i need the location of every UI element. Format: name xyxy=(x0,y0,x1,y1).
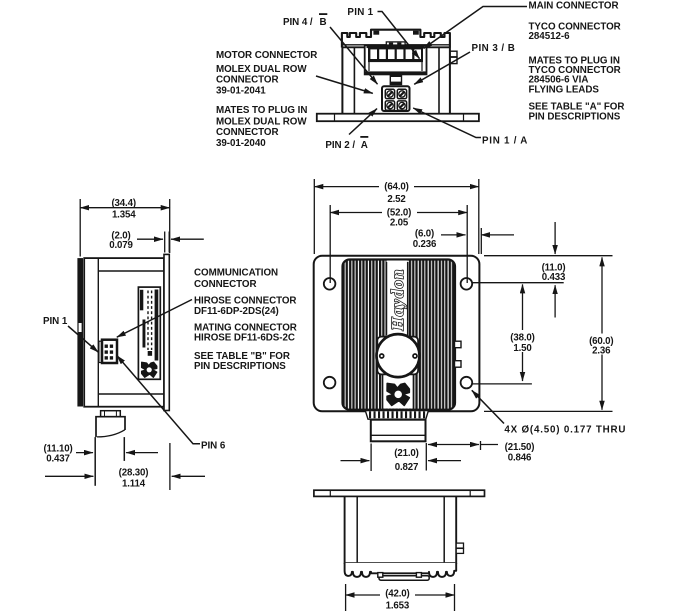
svg-text:CONNECTOR: CONNECTOR xyxy=(216,74,279,85)
svg-text:PIN DESCRIPTIONS: PIN DESCRIPTIONS xyxy=(529,112,621,123)
svg-text:A: A xyxy=(361,140,368,151)
svg-text:PIN 4 /: PIN 4 / xyxy=(283,17,313,28)
svg-text:(21.50): (21.50) xyxy=(505,442,535,453)
svg-text:2.52: 2.52 xyxy=(387,194,405,205)
svg-text:MOLEX DUAL ROW: MOLEX DUAL ROW xyxy=(216,64,307,75)
svg-text:PIN 2 /: PIN 2 / xyxy=(325,140,355,151)
svg-text:0.827: 0.827 xyxy=(395,462,419,473)
svg-text:Haydon: Haydon xyxy=(388,268,407,331)
svg-text:1.50: 1.50 xyxy=(513,343,531,354)
svg-text:PIN 3 / B: PIN 3 / B xyxy=(472,43,516,54)
svg-text:(21.0): (21.0) xyxy=(394,448,418,459)
svg-text:(6.0): (6.0) xyxy=(415,228,434,239)
svg-text:CONNECTOR: CONNECTOR xyxy=(216,127,279,138)
svg-text:MATES TO PLUG IN: MATES TO PLUG IN xyxy=(216,105,307,116)
svg-text:0.846: 0.846 xyxy=(508,452,532,463)
svg-text:(28.30): (28.30) xyxy=(119,467,149,478)
svg-text:0.079: 0.079 xyxy=(109,240,133,251)
svg-text:PIN 1 / A: PIN 1 / A xyxy=(482,136,528,147)
svg-text:HIROSE DF11-6DS-2C: HIROSE DF11-6DS-2C xyxy=(194,332,295,343)
svg-text:284512-6: 284512-6 xyxy=(529,31,571,42)
svg-text:B: B xyxy=(320,17,327,28)
svg-text:1.354: 1.354 xyxy=(112,209,136,220)
svg-text:39-01-2040: 39-01-2040 xyxy=(216,138,266,149)
svg-text:CONNECTOR: CONNECTOR xyxy=(194,279,257,290)
svg-text:(64.0): (64.0) xyxy=(384,181,408,192)
svg-text:MOTOR CONNECTOR: MOTOR CONNECTOR xyxy=(216,50,317,61)
svg-text:0.433: 0.433 xyxy=(542,272,566,283)
svg-text:39-01-2041: 39-01-2041 xyxy=(216,85,266,96)
svg-text:PIN DESCRIPTIONS: PIN DESCRIPTIONS xyxy=(194,361,286,372)
svg-text:2.05: 2.05 xyxy=(390,218,409,229)
svg-text:0.437: 0.437 xyxy=(46,454,70,465)
svg-text:PIN 1: PIN 1 xyxy=(347,7,373,18)
svg-text:HIROSE CONNECTOR: HIROSE CONNECTOR xyxy=(194,296,296,307)
svg-text:MAIN CONNECTOR: MAIN CONNECTOR xyxy=(529,1,619,12)
svg-text:(34.4): (34.4) xyxy=(111,198,135,209)
svg-text:DF11-6DP-2DS(24): DF11-6DP-2DS(24) xyxy=(194,306,279,317)
svg-text:FLYING LEADS: FLYING LEADS xyxy=(529,85,600,96)
svg-text:PIN 6: PIN 6 xyxy=(201,441,226,452)
svg-text:0.236: 0.236 xyxy=(413,239,437,250)
svg-text:2.36: 2.36 xyxy=(592,346,611,357)
svg-text:4X Ø(4.50) 0.177 THRU: 4X Ø(4.50) 0.177 THRU xyxy=(504,425,626,436)
svg-text:1.653: 1.653 xyxy=(386,600,410,611)
svg-text:(38.0): (38.0) xyxy=(510,333,534,344)
svg-text:COMMUNICATION: COMMUNICATION xyxy=(194,268,278,279)
svg-text:1.114: 1.114 xyxy=(122,478,146,489)
svg-text:(42.0): (42.0) xyxy=(385,588,409,599)
svg-text:PIN 1: PIN 1 xyxy=(43,316,68,327)
